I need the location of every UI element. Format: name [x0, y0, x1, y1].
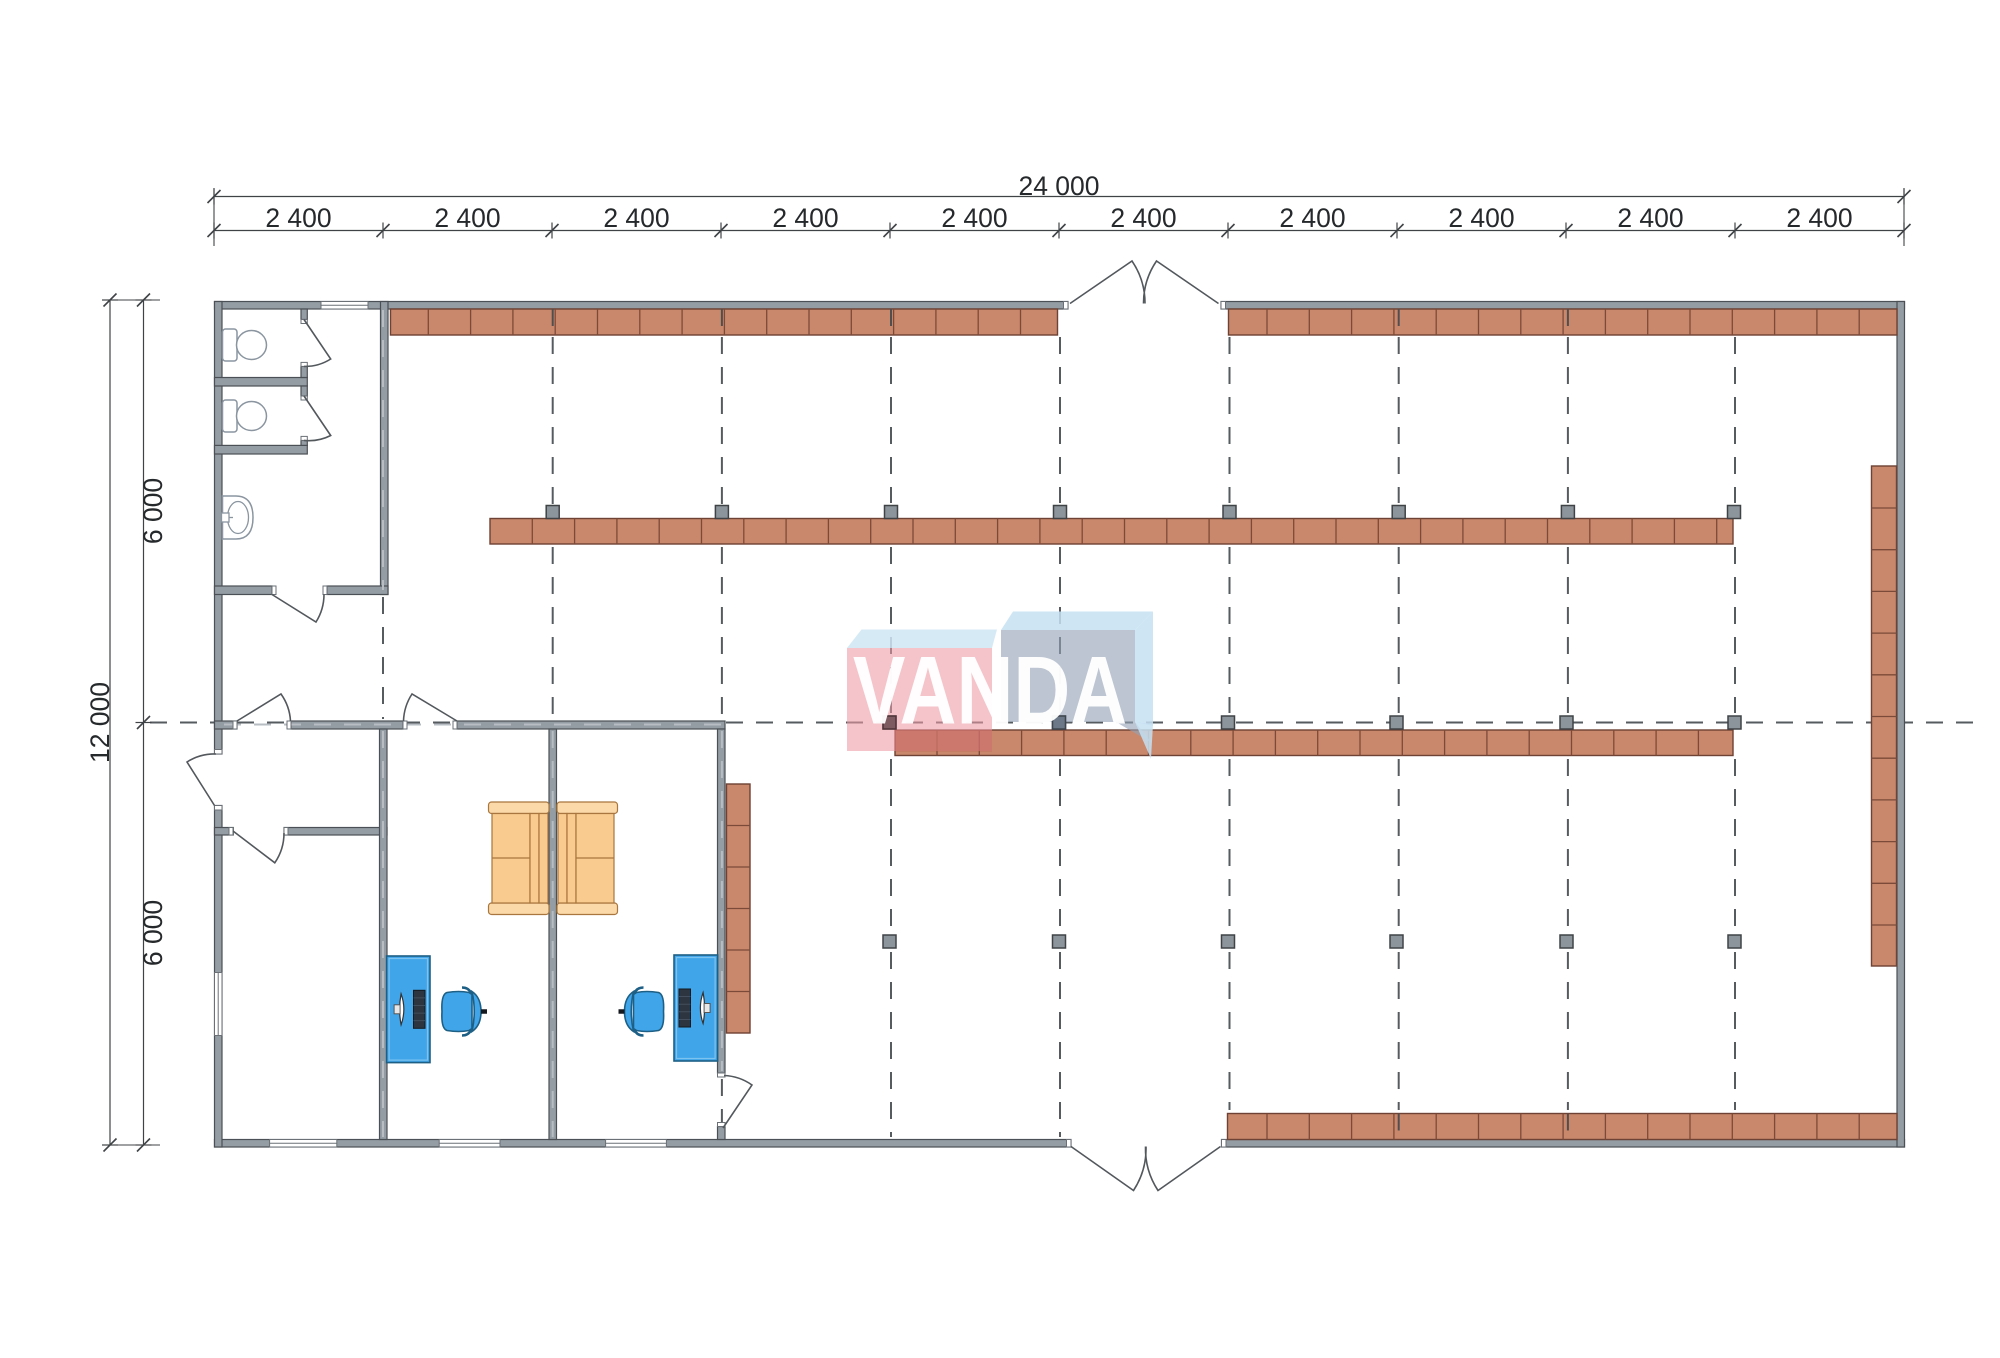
svg-text:12 000: 12 000 — [85, 682, 115, 763]
svg-text:6 000: 6 000 — [138, 478, 168, 544]
svg-text:2 400: 2 400 — [1786, 203, 1852, 233]
svg-text:2 400: 2 400 — [603, 203, 669, 233]
svg-text:2 400: 2 400 — [772, 203, 838, 233]
svg-text:2 400: 2 400 — [1448, 203, 1514, 233]
svg-text:2 400: 2 400 — [941, 203, 1007, 233]
svg-text:2 400: 2 400 — [1279, 203, 1345, 233]
svg-text:2 400: 2 400 — [1110, 203, 1176, 233]
svg-text:2 400: 2 400 — [434, 203, 500, 233]
svg-text:2 400: 2 400 — [265, 203, 331, 233]
svg-text:VANDA: VANDA — [853, 636, 1127, 744]
svg-text:24 000: 24 000 — [1018, 171, 1099, 201]
svg-text:6 000: 6 000 — [138, 900, 168, 966]
svg-text:2 400: 2 400 — [1617, 203, 1683, 233]
